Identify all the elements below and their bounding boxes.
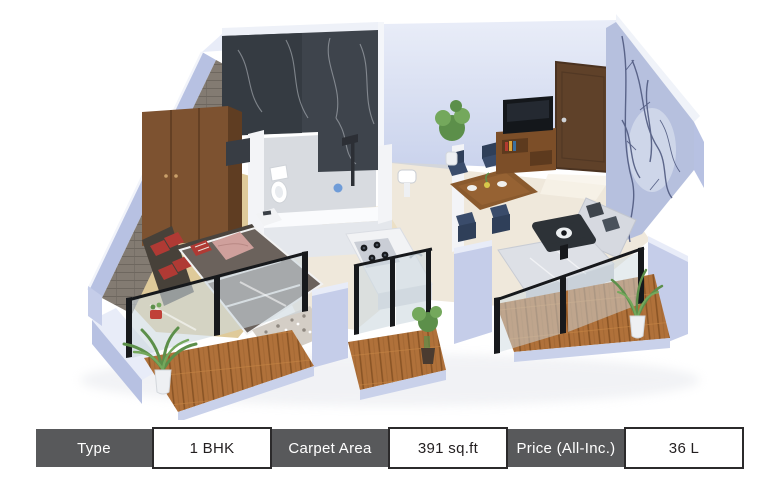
spec-value-carpet-area: 391 sq.ft	[388, 427, 508, 469]
bath-bucket	[334, 184, 343, 193]
spec-value-type: 1 BHK	[152, 427, 272, 469]
shower-partition	[378, 144, 392, 224]
wardrobe	[142, 106, 228, 246]
tv-unit	[496, 96, 556, 174]
geyser-box	[226, 138, 250, 166]
pier-right	[454, 246, 492, 344]
spec-label-type: Type	[36, 429, 152, 467]
spec-value-price: 36 L	[624, 427, 744, 469]
floor-plan-image	[0, 0, 780, 420]
property-floorplan-page: Type 1 BHK Carpet Area 391 sq.ft Price (…	[0, 0, 780, 500]
pier-left	[312, 288, 348, 368]
wardrobe-side	[228, 106, 242, 240]
door-handle-icon	[562, 118, 567, 123]
spec-table: Type 1 BHK Carpet Area 391 sq.ft Price (…	[36, 427, 744, 469]
entry-door	[556, 62, 610, 172]
spec-label-price: Price (All-Inc.)	[508, 429, 624, 467]
right-wall-outer	[694, 122, 704, 188]
spec-label-carpet-area: Carpet Area	[272, 429, 388, 467]
